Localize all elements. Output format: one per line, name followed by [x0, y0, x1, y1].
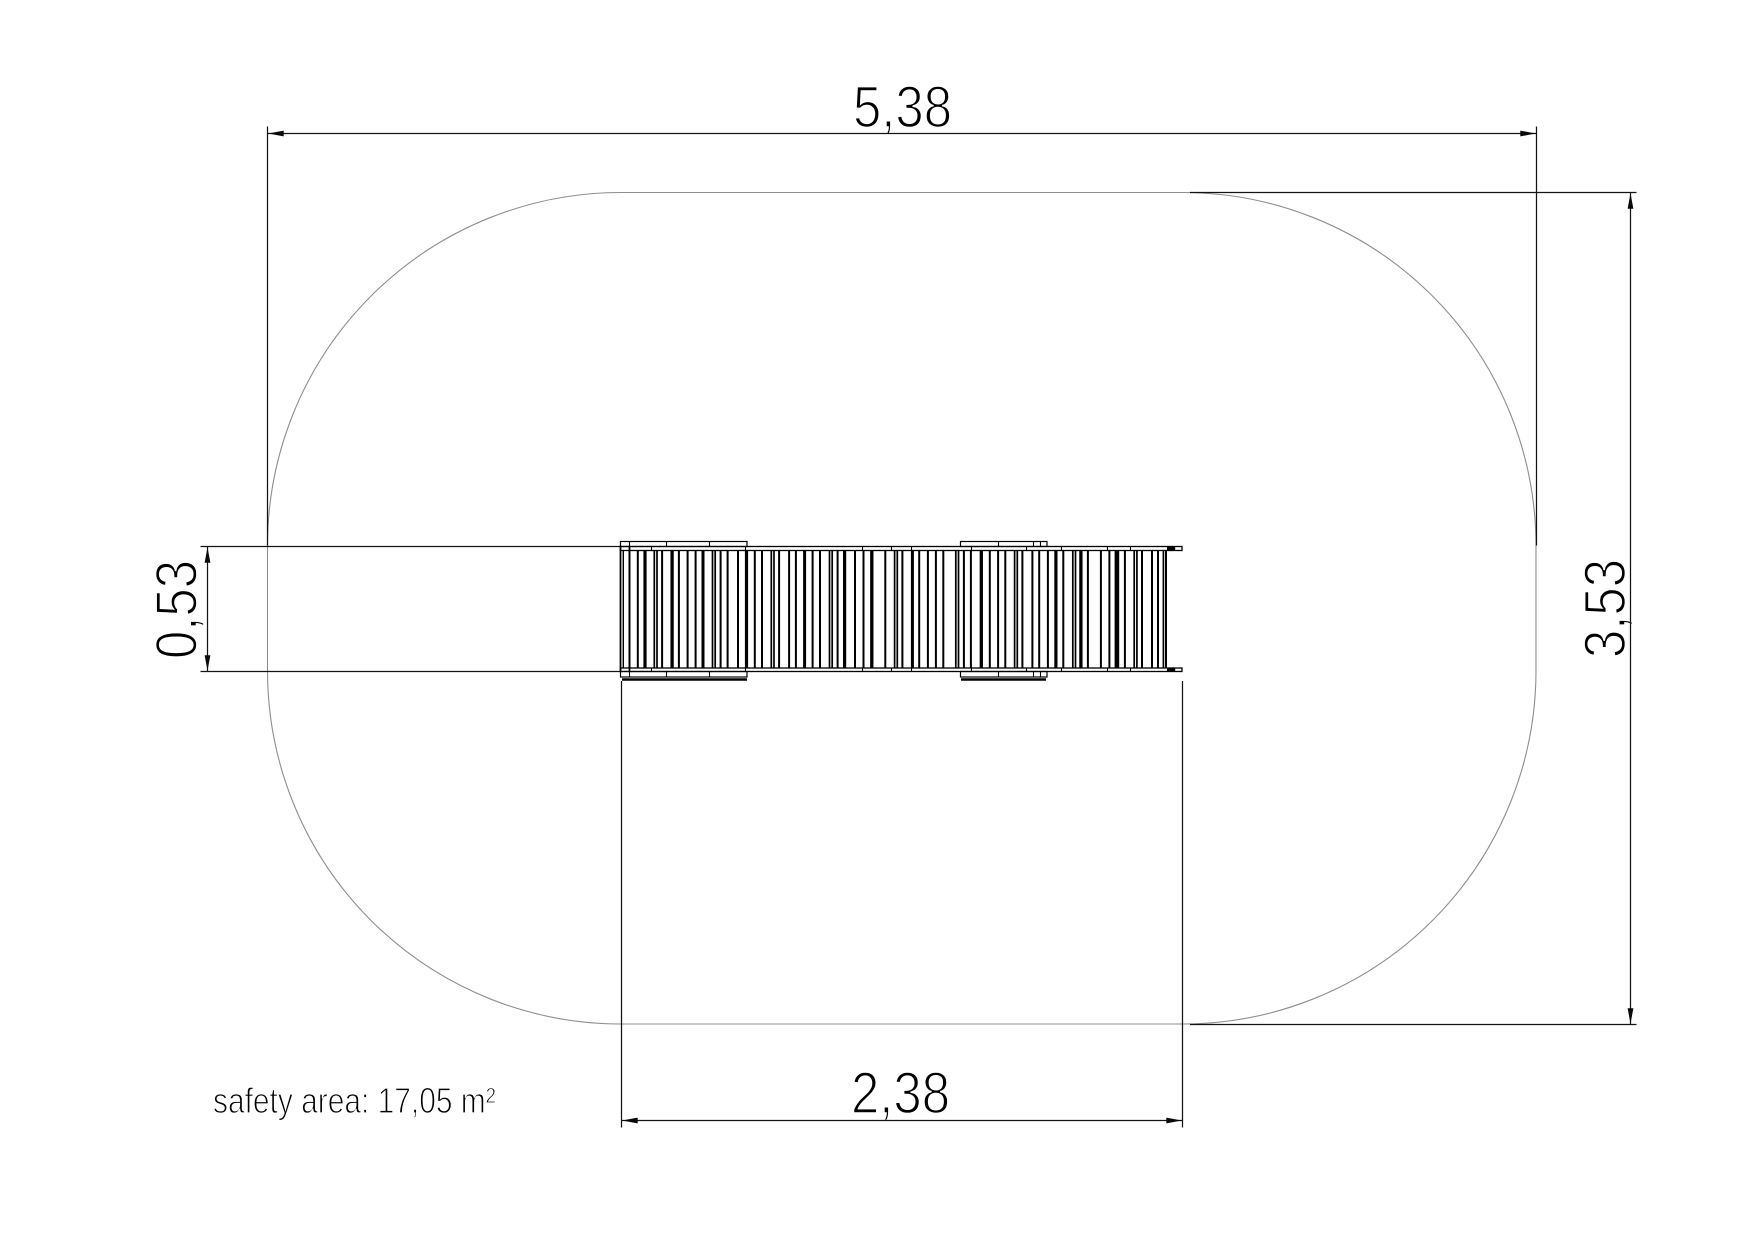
svg-text:3,53: 3,53 — [1572, 559, 1638, 658]
svg-text:0,53: 0,53 — [143, 560, 209, 659]
svg-text:safety area: 17,05 m²: safety area: 17,05 m² — [213, 1081, 496, 1121]
svg-text:2,38: 2,38 — [851, 1060, 950, 1126]
svg-text:5,38: 5,38 — [853, 74, 952, 140]
